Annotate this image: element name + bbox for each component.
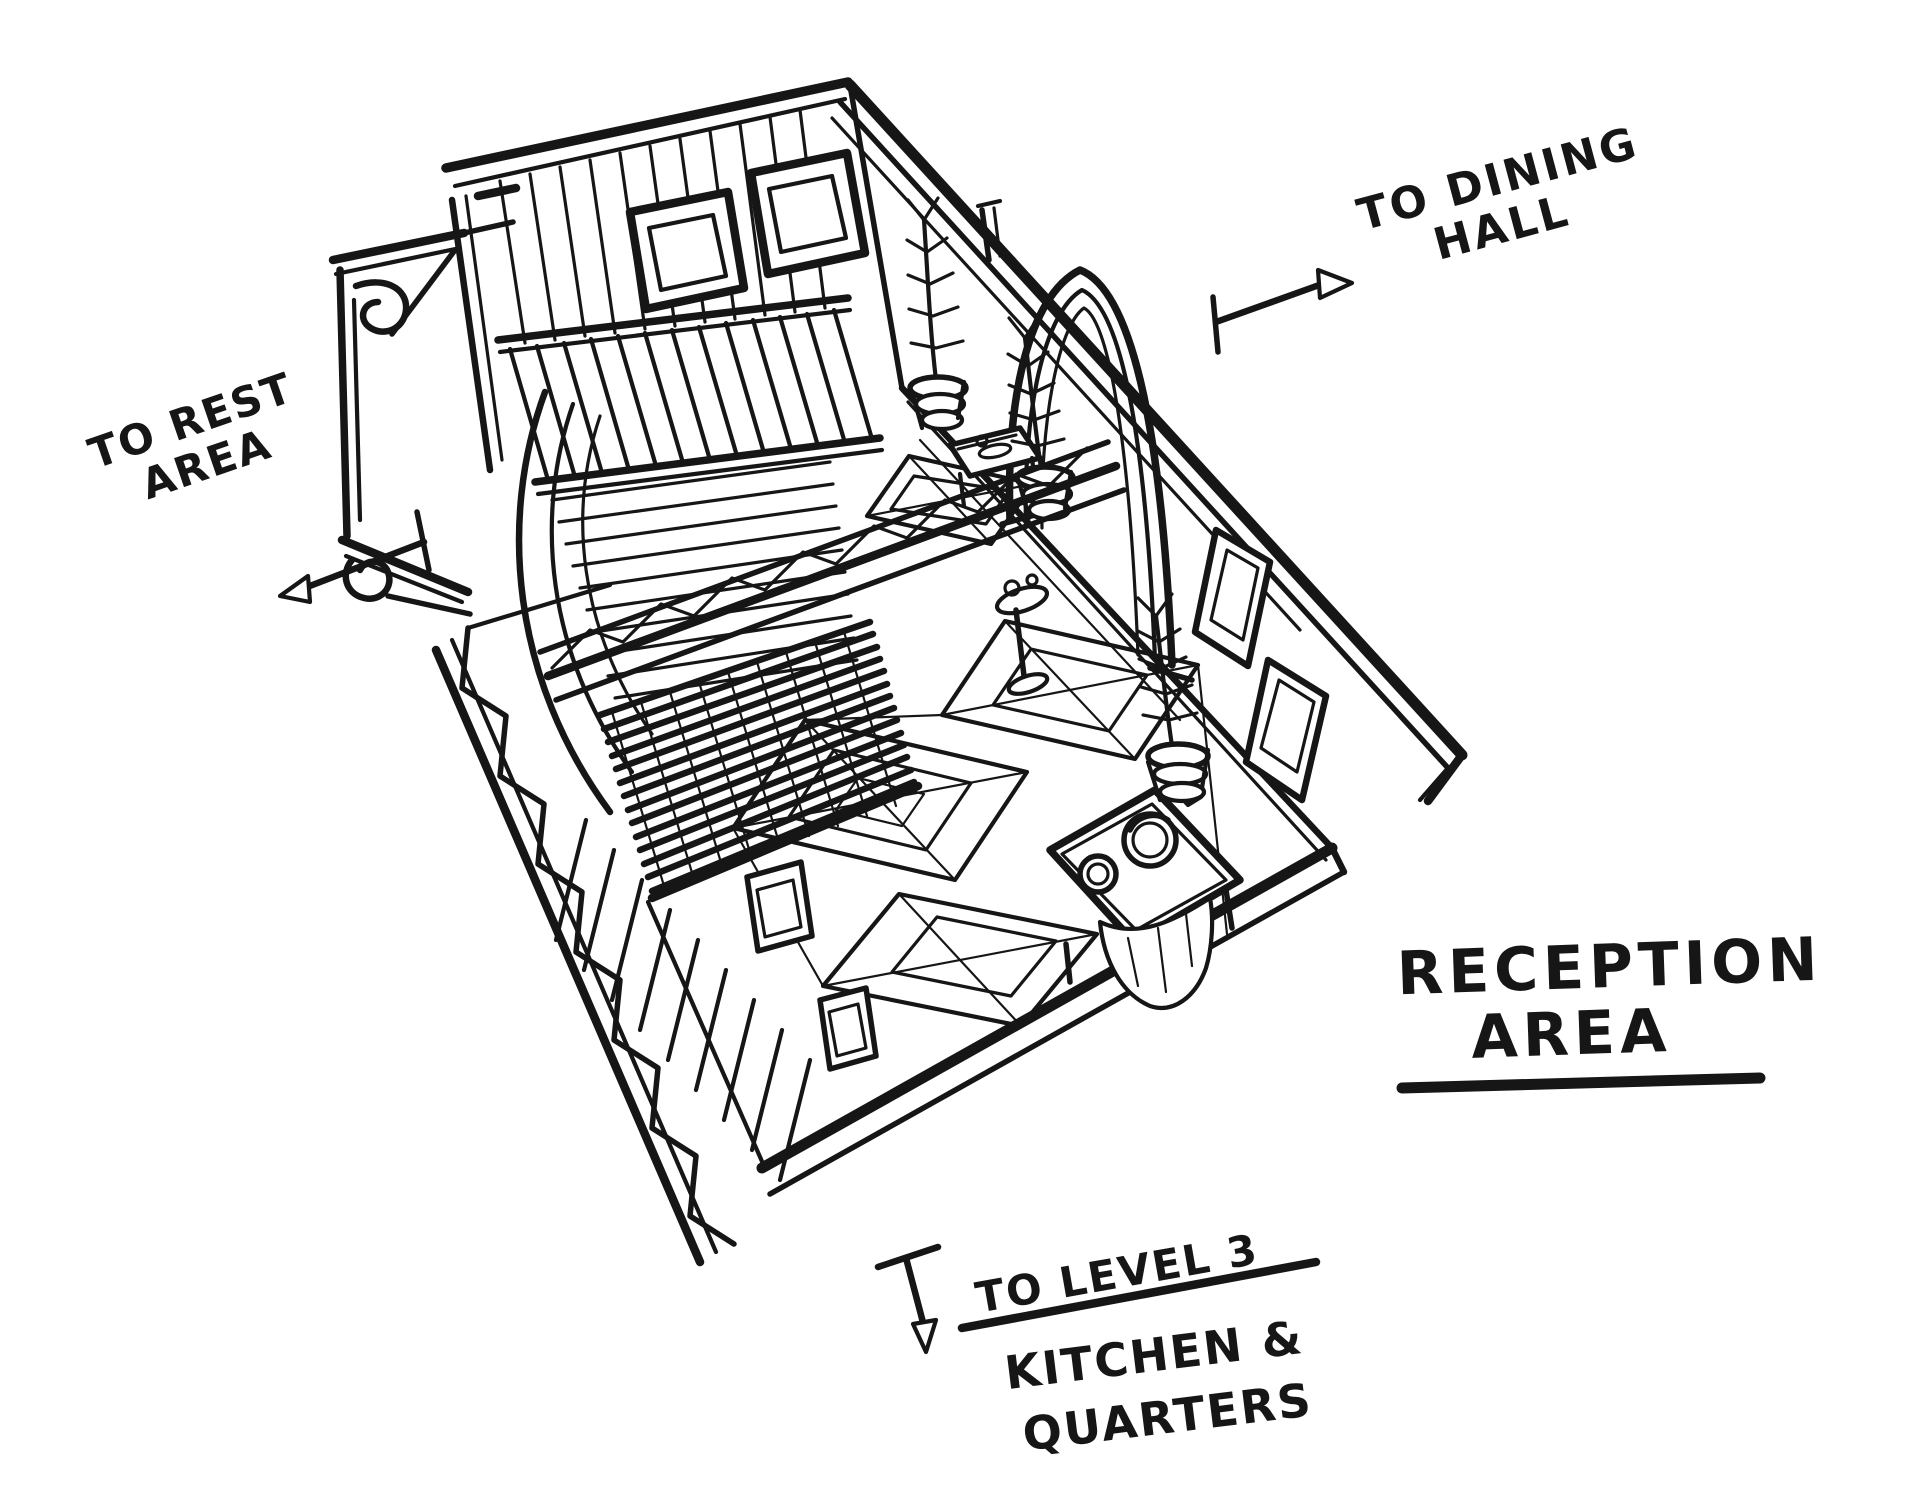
wall-frame — [1195, 530, 1326, 800]
arrow-down-icon — [878, 1247, 938, 1352]
sketch-page: TO DINING HALL TO REST AREA RECEPTION AR… — [0, 0, 1920, 1509]
title-line: RECEPTION — [1396, 929, 1824, 1006]
scroll-ledge — [333, 222, 513, 614]
reception-desk — [1050, 783, 1240, 1007]
title-underline — [1402, 1078, 1760, 1088]
page-title: RECEPTION AREA — [1396, 929, 1826, 1073]
pedestal-stand — [994, 575, 1050, 698]
arrow-up-right-icon — [1213, 270, 1352, 352]
title-line: AREA — [1470, 995, 1826, 1070]
square-window — [630, 153, 865, 309]
reception-area-sketch — [0, 0, 1920, 1509]
arrow-down-left-icon — [280, 512, 429, 602]
